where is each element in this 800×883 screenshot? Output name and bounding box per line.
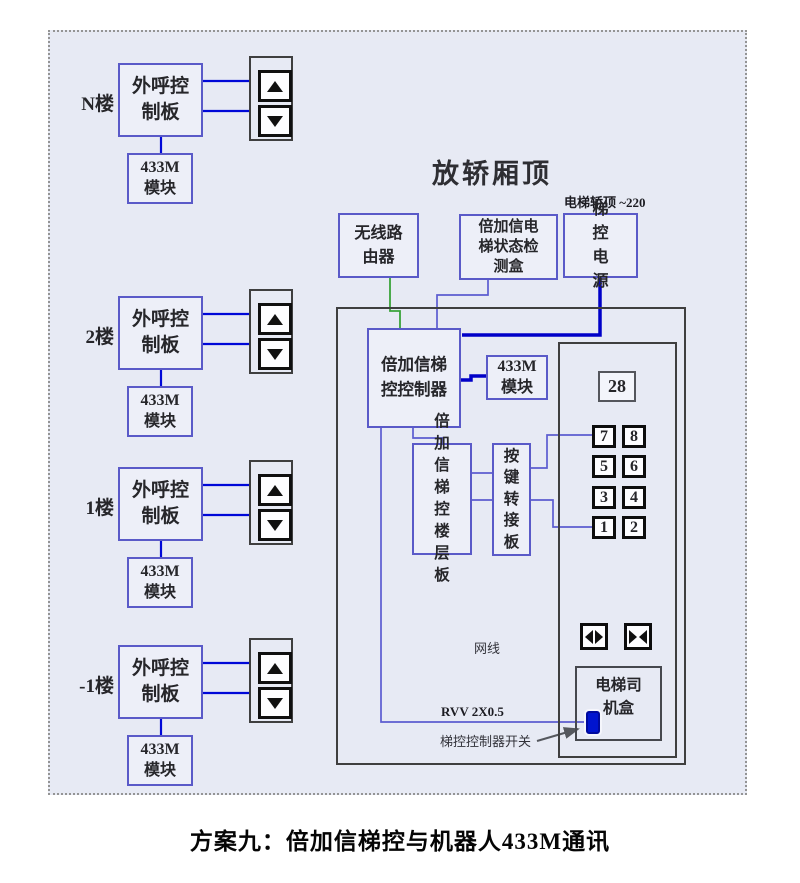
module-433m-label: 433M <box>140 391 179 412</box>
hall-call-board: 外呼控制板 <box>118 63 203 137</box>
down-button <box>258 509 292 541</box>
net-cable-label: 网线 <box>474 638 500 657</box>
wireless-router-box: 无线路由器 <box>338 213 419 278</box>
elevator-status-detector-box: 倍加信电梯状态检测盒 <box>459 214 558 280</box>
floor-group-n: N楼 外呼控制板 433M 模块 <box>0 63 320 213</box>
controller-module-433m: 433M 模块 <box>486 355 548 400</box>
module-433m-label: 433M <box>497 357 536 378</box>
down-arrow-icon <box>267 116 283 127</box>
floor-button-4: 4 <box>622 486 646 509</box>
module-433m: 433M 模块 <box>127 386 193 437</box>
module-433m-label: 433M <box>140 158 179 179</box>
up-button <box>258 652 292 684</box>
hall-button-panel <box>249 289 293 374</box>
door-open-icon <box>585 630 593 644</box>
schematic-page: N楼 外呼控制板 433M 模块 2楼 外呼控制板 433M 模块 1楼 外呼控… <box>0 0 800 883</box>
up-arrow-icon <box>267 81 283 92</box>
down-arrow-icon <box>267 520 283 531</box>
door-close-button <box>624 623 652 650</box>
module-433m: 433M 模块 <box>127 735 193 786</box>
down-button <box>258 338 292 370</box>
door-close-icon-right <box>639 630 647 644</box>
down-arrow-icon <box>267 698 283 709</box>
elevator-control-power-box: 梯控电源 <box>563 213 638 278</box>
controller-switch <box>586 711 600 734</box>
floor-board-box: 倍加信梯控楼层板 <box>412 443 472 555</box>
floor-group-m1: -1楼 外呼控制板 433M 模块 <box>0 645 320 795</box>
module-433m: 433M 模块 <box>127 153 193 204</box>
controller-switch-label: 梯控控制器开关 <box>440 731 531 750</box>
module-433m-label: 433M <box>140 562 179 583</box>
floor-button-7: 7 <box>592 425 616 448</box>
floor-button-1: 1 <box>592 516 616 539</box>
up-button <box>258 303 292 335</box>
floor-button-5: 5 <box>592 455 616 478</box>
up-arrow-icon <box>267 314 283 325</box>
module-label: 模块 <box>144 412 176 433</box>
module-label: 模块 <box>144 179 176 200</box>
car-top-title: 放轿厢顶 <box>392 152 592 191</box>
module-label: 模块 <box>501 378 533 399</box>
down-arrow-icon <box>267 349 283 360</box>
floor-button-8: 8 <box>622 425 646 448</box>
floor-label: 1楼 <box>55 493 114 520</box>
door-open-button <box>580 623 608 650</box>
key-adapter-board-box: 按键转接板 <box>492 443 531 556</box>
door-open-icon-right <box>595 630 603 644</box>
down-button <box>258 687 292 719</box>
module-433m-label: 433M <box>140 740 179 761</box>
floor-display: 28 <box>598 371 636 402</box>
up-button <box>258 474 292 506</box>
rvv-cable-label: RVV 2X0.5 <box>441 704 504 720</box>
up-arrow-icon <box>267 485 283 496</box>
floor-group-1: 1楼 外呼控制板 433M 模块 <box>0 467 320 617</box>
up-button <box>258 70 292 102</box>
floor-button-2: 2 <box>622 516 646 539</box>
module-433m: 433M 模块 <box>127 557 193 608</box>
floor-button-6: 6 <box>622 455 646 478</box>
hall-button-panel <box>249 638 293 723</box>
floor-label: N楼 <box>55 89 114 116</box>
diagram-title: 方案九：倍加信梯控与机器人433M通讯 <box>0 822 800 856</box>
down-button <box>258 105 292 137</box>
module-label: 模块 <box>144 761 176 782</box>
floor-label: -1楼 <box>55 671 114 698</box>
hall-button-panel <box>249 56 293 141</box>
door-close-icon <box>629 630 637 644</box>
hall-call-board: 外呼控制板 <box>118 645 203 719</box>
hall-call-board: 外呼控制板 <box>118 467 203 541</box>
hall-call-board: 外呼控制板 <box>118 296 203 370</box>
hall-button-panel <box>249 460 293 545</box>
module-label: 模块 <box>144 583 176 604</box>
floor-label: 2楼 <box>55 322 114 349</box>
floor-button-3: 3 <box>592 486 616 509</box>
floor-group-2: 2楼 外呼控制板 433M 模块 <box>0 296 320 446</box>
up-arrow-icon <box>267 663 283 674</box>
